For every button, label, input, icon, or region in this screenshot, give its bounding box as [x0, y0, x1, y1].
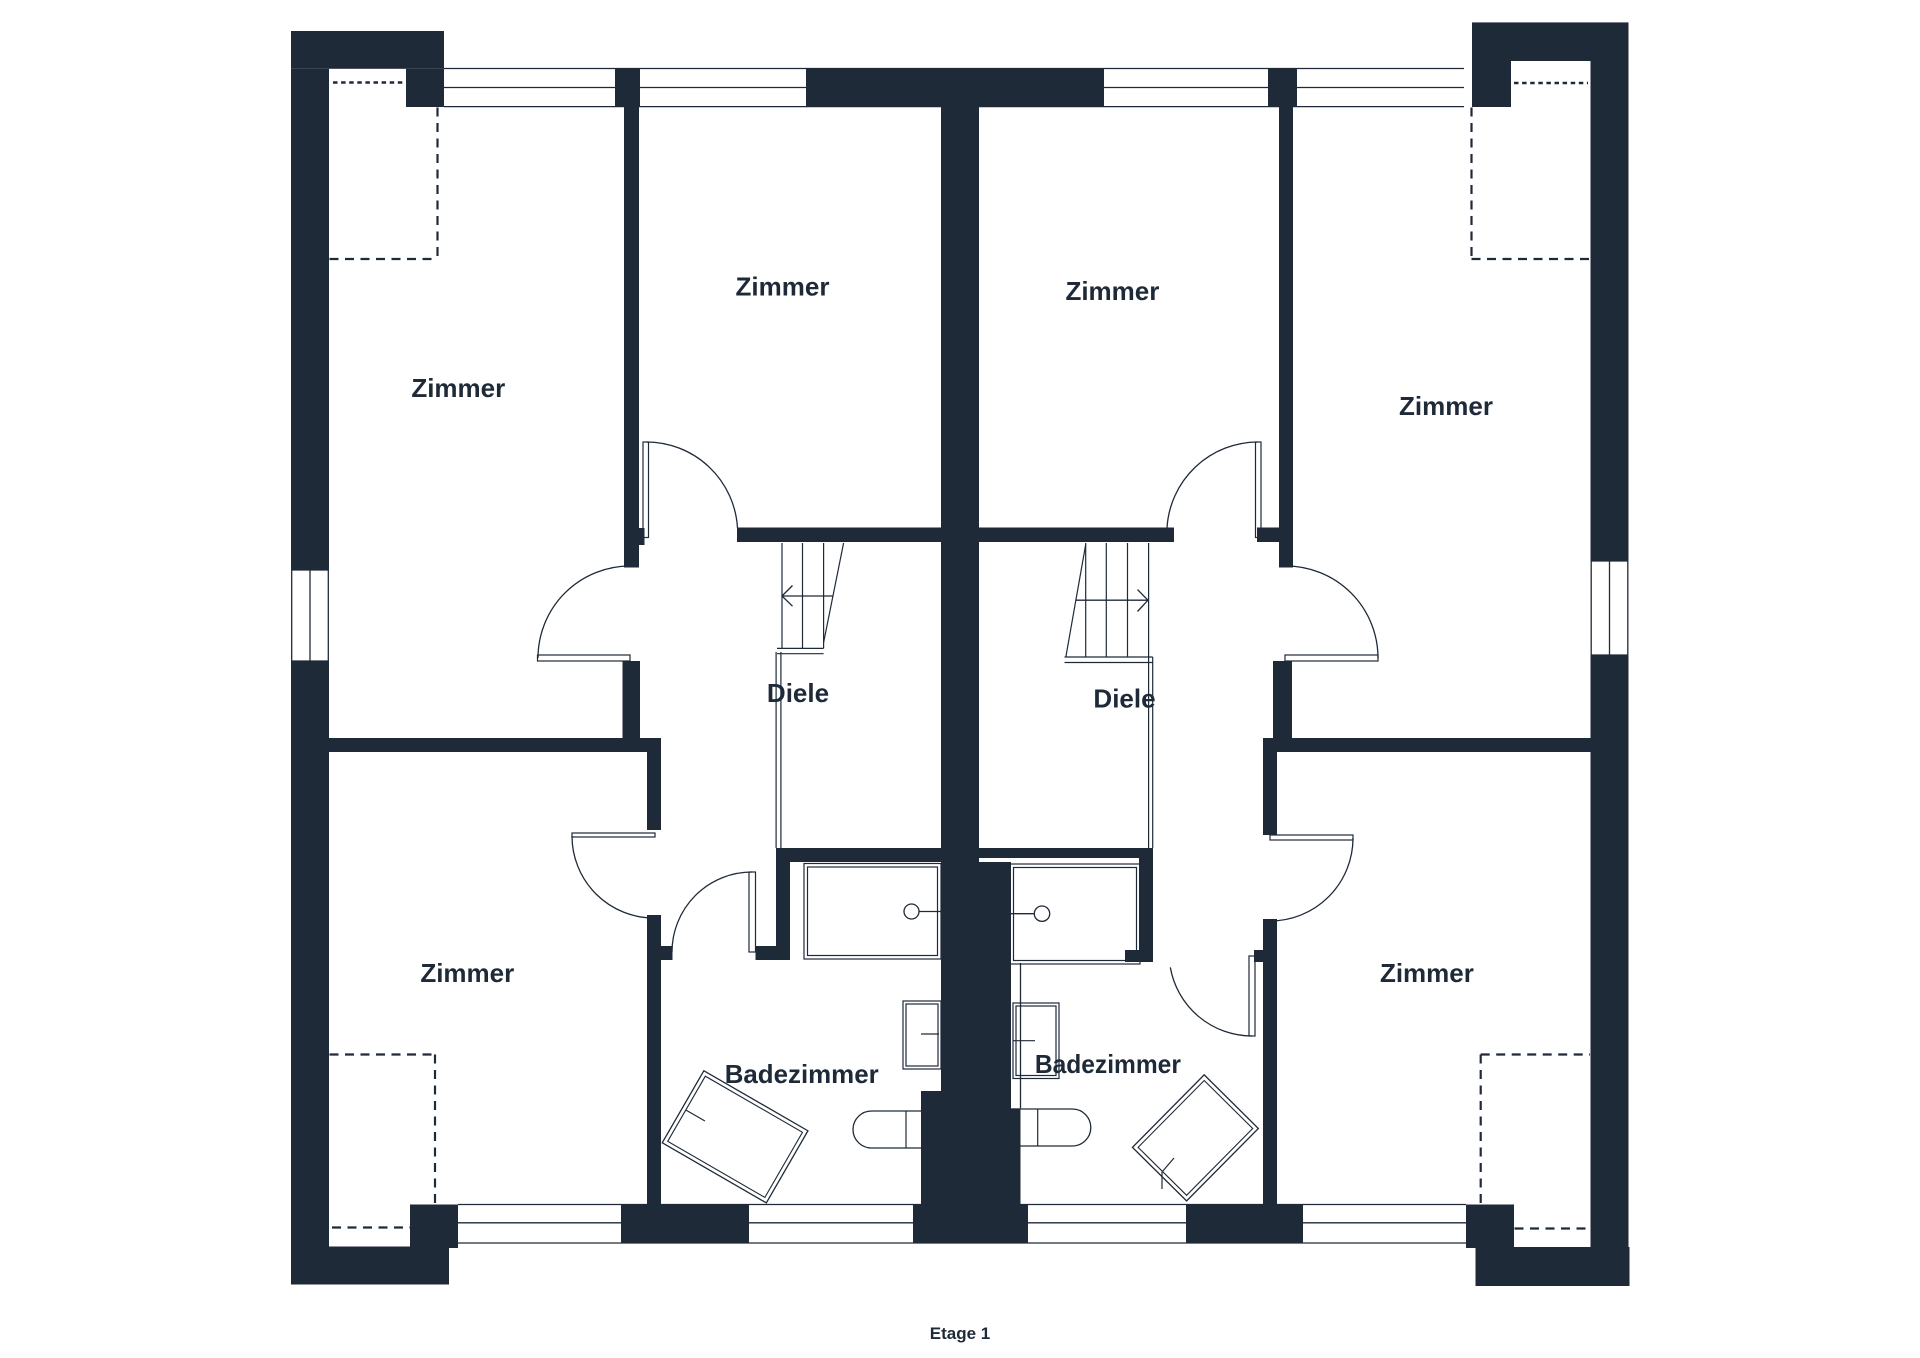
- svg-text:Zimmer: Zimmer: [736, 272, 830, 302]
- svg-text:Badezimmer: Badezimmer: [1035, 1049, 1181, 1079]
- svg-text:Diele: Diele: [767, 678, 829, 708]
- svg-text:Zimmer: Zimmer: [1065, 276, 1159, 306]
- svg-text:Diele: Diele: [1093, 684, 1155, 714]
- svg-text:Zimmer: Zimmer: [411, 373, 505, 403]
- svg-text:Zimmer: Zimmer: [420, 958, 514, 988]
- svg-text:Badezimmer: Badezimmer: [725, 1059, 879, 1089]
- svg-text:Etage 1: Etage 1: [930, 1324, 990, 1343]
- svg-text:Zimmer: Zimmer: [1399, 391, 1493, 421]
- svg-text:Zimmer: Zimmer: [1380, 958, 1474, 988]
